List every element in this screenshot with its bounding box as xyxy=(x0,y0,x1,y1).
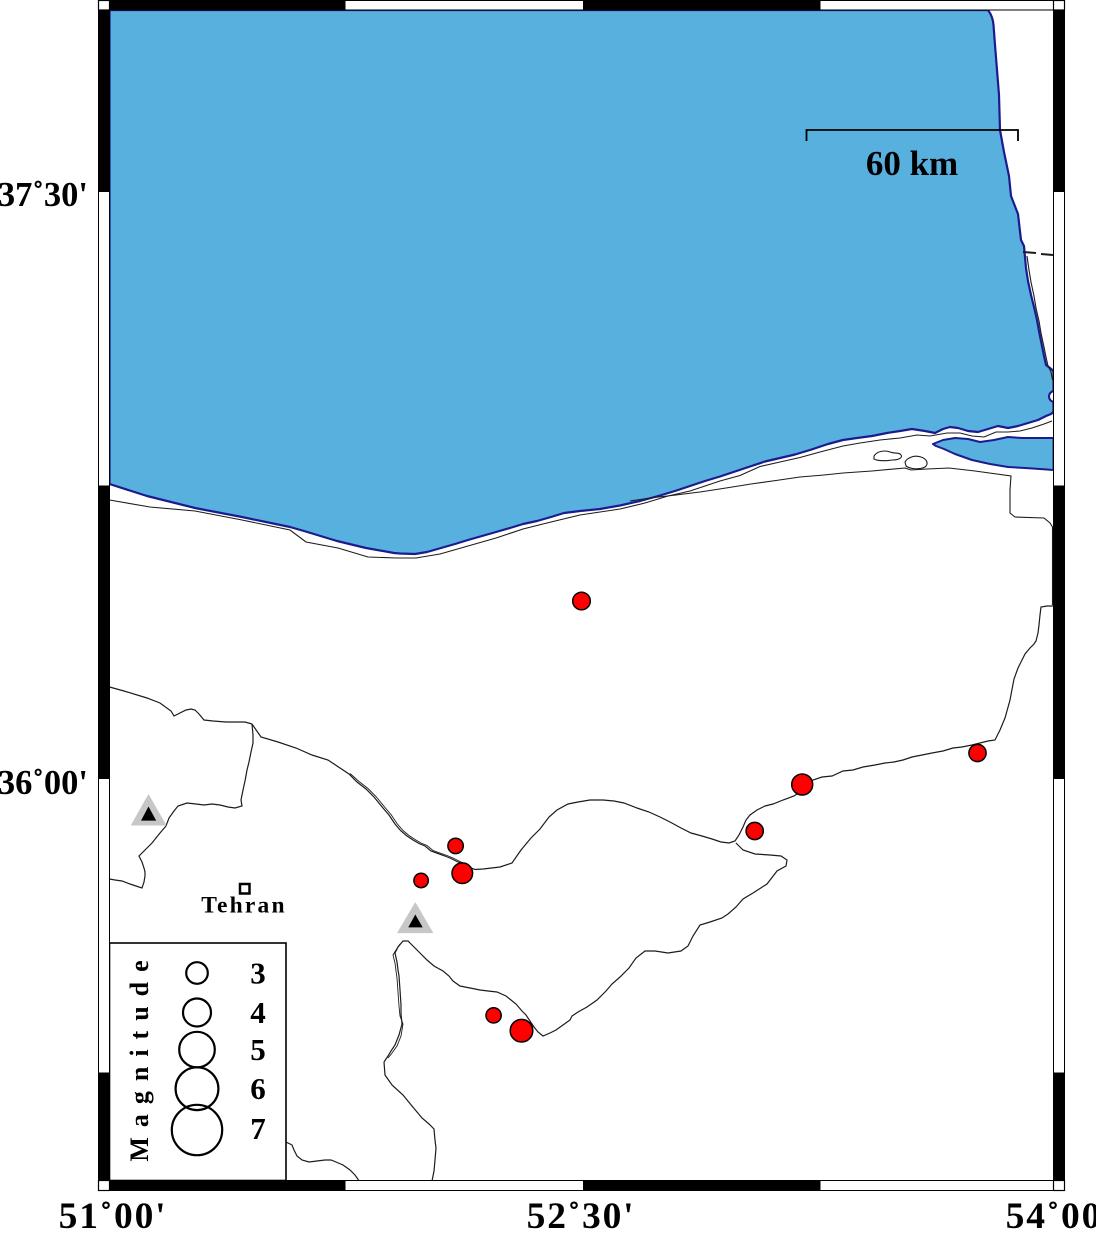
svg-text:60 km: 60 km xyxy=(866,144,958,183)
svg-text:Tehran: Tehran xyxy=(201,893,286,919)
svg-text:4: 4 xyxy=(250,995,266,1030)
svg-text:Magnitude: Magnitude xyxy=(125,950,154,1161)
svg-text:6: 6 xyxy=(250,1071,266,1106)
svg-text:52˚30': 52˚30' xyxy=(527,1196,636,1229)
svg-text:3: 3 xyxy=(250,956,266,991)
svg-text:36˚00': 36˚00' xyxy=(0,764,88,802)
svg-text:37˚30': 37˚30' xyxy=(0,176,88,214)
svg-text:54˚00': 54˚00' xyxy=(1006,1196,1096,1229)
svg-text:7: 7 xyxy=(250,1111,266,1146)
svg-text:5: 5 xyxy=(250,1032,266,1067)
svg-text:51˚00': 51˚00' xyxy=(59,1196,168,1229)
